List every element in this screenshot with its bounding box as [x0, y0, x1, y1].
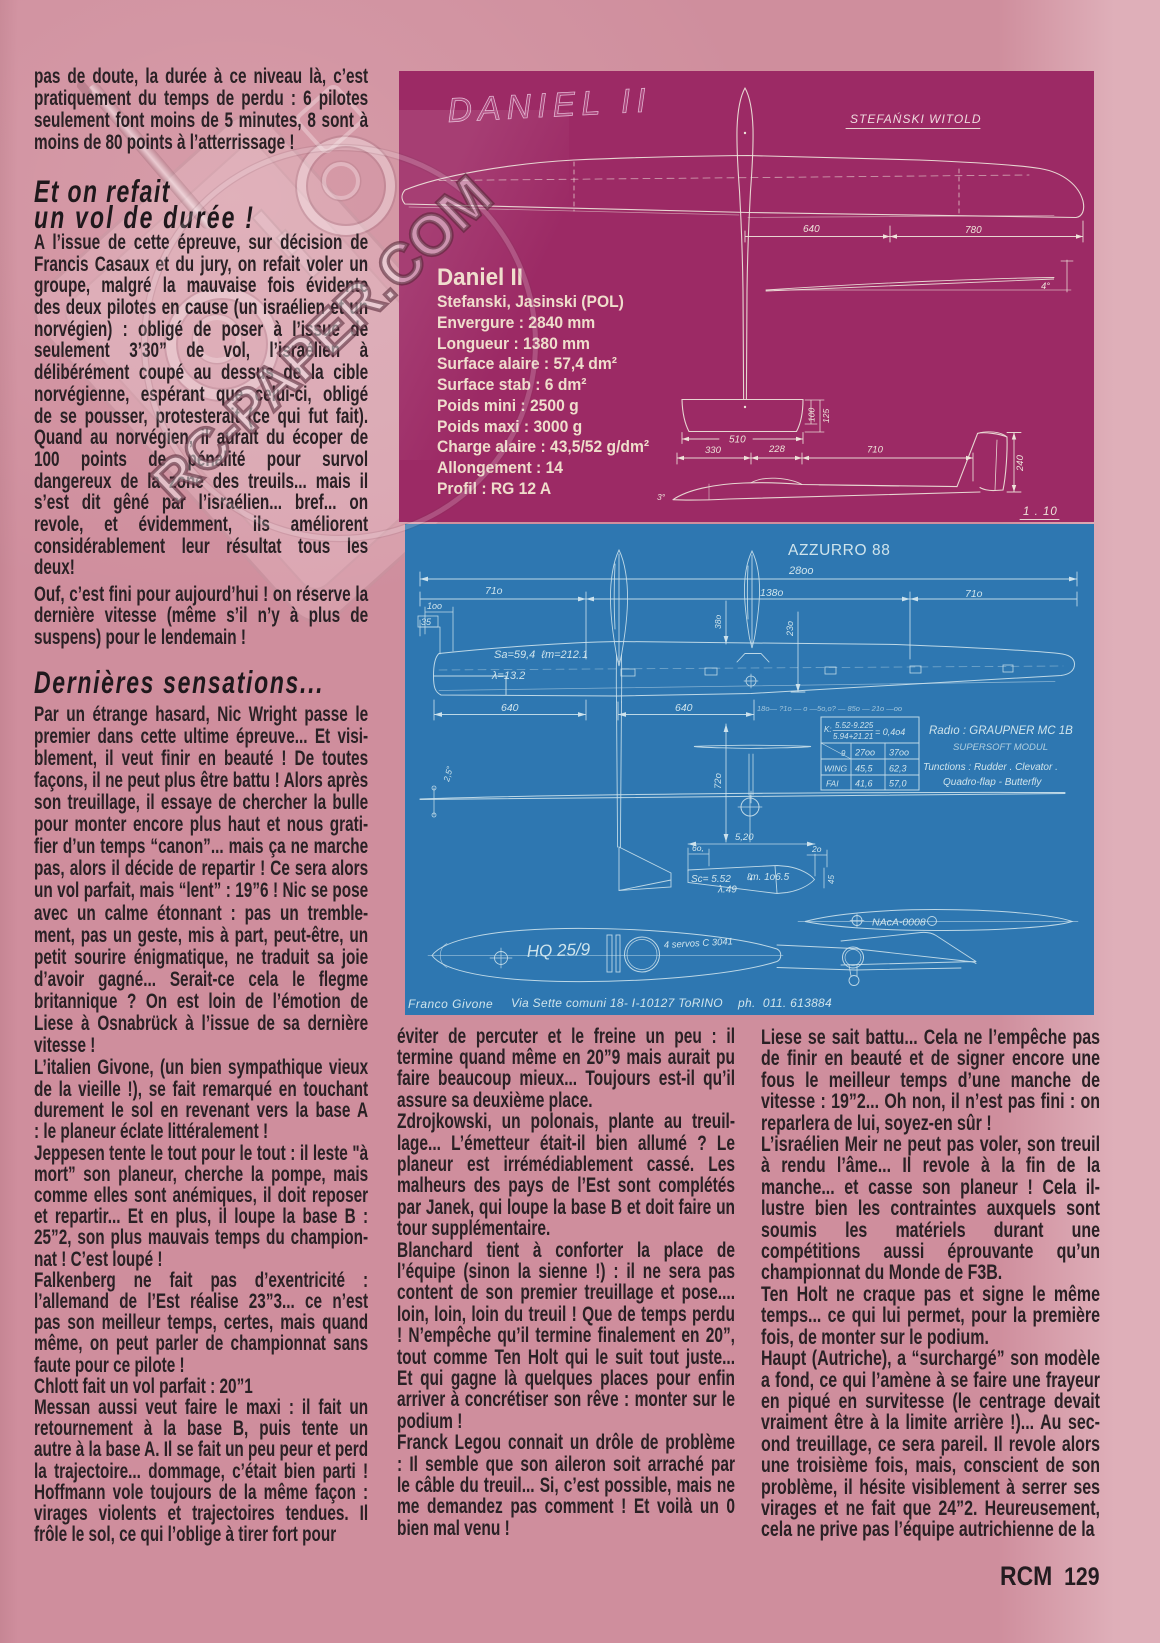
svg-text:1oo: 1oo: [427, 601, 442, 611]
svg-text:45,5: 45,5: [855, 764, 874, 774]
svg-text:Radıo : GRAUPNER MC 1B: Radıo : GRAUPNER MC 1B: [929, 725, 1073, 737]
svg-text:ph. 011. 613884: ph. 011. 613884: [737, 996, 832, 1010]
svg-text:100: 100: [807, 408, 817, 422]
svg-text:23o: 23o: [785, 621, 795, 637]
svg-text:45: 45: [827, 875, 836, 884]
svg-text:HQ 25/9: HQ 25/9: [526, 940, 590, 961]
svg-text:2o: 2o: [811, 844, 822, 854]
svg-text:640: 640: [675, 702, 693, 714]
svg-text:WING: WING: [824, 764, 848, 774]
svg-text:K:: K:: [824, 725, 832, 734]
svg-text:28oo: 28oo: [788, 565, 813, 577]
svg-text:5,20: 5,20: [735, 832, 754, 843]
svg-text:18o— ?1o — o —5o,o? — 85o — 21: 18o— ?1o — o —5o,o? — 85o — 21o —oo: [757, 704, 902, 713]
svg-text:Quadro-flap - Butterfly: Quadro-flap - Butterfly: [943, 777, 1042, 788]
svg-text:240: 240: [1015, 454, 1026, 472]
svg-text:Sc= 5.52: Sc= 5.52: [691, 874, 731, 885]
svg-text:71o: 71o: [485, 585, 503, 597]
svg-text:6o,: 6o,: [692, 843, 704, 853]
svg-text:71o: 71o: [965, 588, 983, 600]
svg-text:3°: 3°: [657, 492, 666, 502]
svg-text:FAI: FAI: [826, 779, 839, 789]
svg-text:710: 710: [867, 445, 884, 456]
svg-text:37oo: 37oo: [889, 748, 909, 758]
svg-text:1 . 10: 1 . 10: [1023, 506, 1058, 518]
svg-text:62,3: 62,3: [889, 764, 907, 774]
svg-text:138o: 138o: [760, 587, 784, 599]
svg-text:ℓm. 1o6.5: ℓm. 1o6.5: [746, 872, 790, 883]
svg-text:780: 780: [965, 225, 982, 236]
svg-text:330: 330: [705, 445, 722, 456]
svg-text:640: 640: [803, 224, 820, 235]
svg-text:57,0: 57,0: [889, 779, 907, 789]
svg-text:= 0,4o4: = 0,4o4: [875, 727, 905, 737]
svg-text:NAcA-0008: NAcA-0008: [872, 917, 926, 929]
svg-text:STEFAŃSKI WITOLD: STEFAŃSKI WITOLD: [850, 111, 982, 126]
svg-text:λ.49: λ.49: [717, 885, 737, 896]
svg-text:228: 228: [768, 444, 786, 455]
svg-text:Sa=59,4 ℓm=212.1: Sa=59,4 ℓm=212.1: [494, 649, 588, 661]
svg-text:Tunctions : Rudder . Clevator: Tunctions : Rudder . Clevator .: [923, 762, 1058, 773]
svg-text:27oo: 27oo: [854, 748, 875, 758]
svg-text:5.94+21.21: 5.94+21.21: [833, 732, 873, 741]
svg-text:72o: 72o: [713, 773, 724, 789]
svg-text:41,6: 41,6: [855, 779, 873, 789]
svg-text:35: 35: [421, 617, 432, 627]
svg-text:Franco Givone: Franco Givone: [408, 997, 493, 1011]
svg-text:125: 125: [821, 409, 831, 423]
svg-text:SUPERSOFT MODUL: SUPERSOFT MODUL: [953, 742, 1048, 753]
svg-text:Via Sette comuni 18- I-10127 T: Via Sette comuni 18- I-10127 ToRINO: [511, 996, 723, 1010]
svg-text:AZZURRO 88: AZZURRO 88: [788, 542, 890, 559]
svg-text:5.52-9.225: 5.52-9.225: [835, 721, 874, 730]
svg-text:38o: 38o: [713, 615, 723, 629]
svg-text:510: 510: [729, 435, 746, 446]
svg-text:4°: 4°: [1041, 281, 1050, 292]
svg-text:640: 640: [501, 702, 519, 714]
svg-text:λ=13.2: λ=13.2: [491, 670, 525, 682]
svg-text:9: 9: [841, 749, 846, 758]
